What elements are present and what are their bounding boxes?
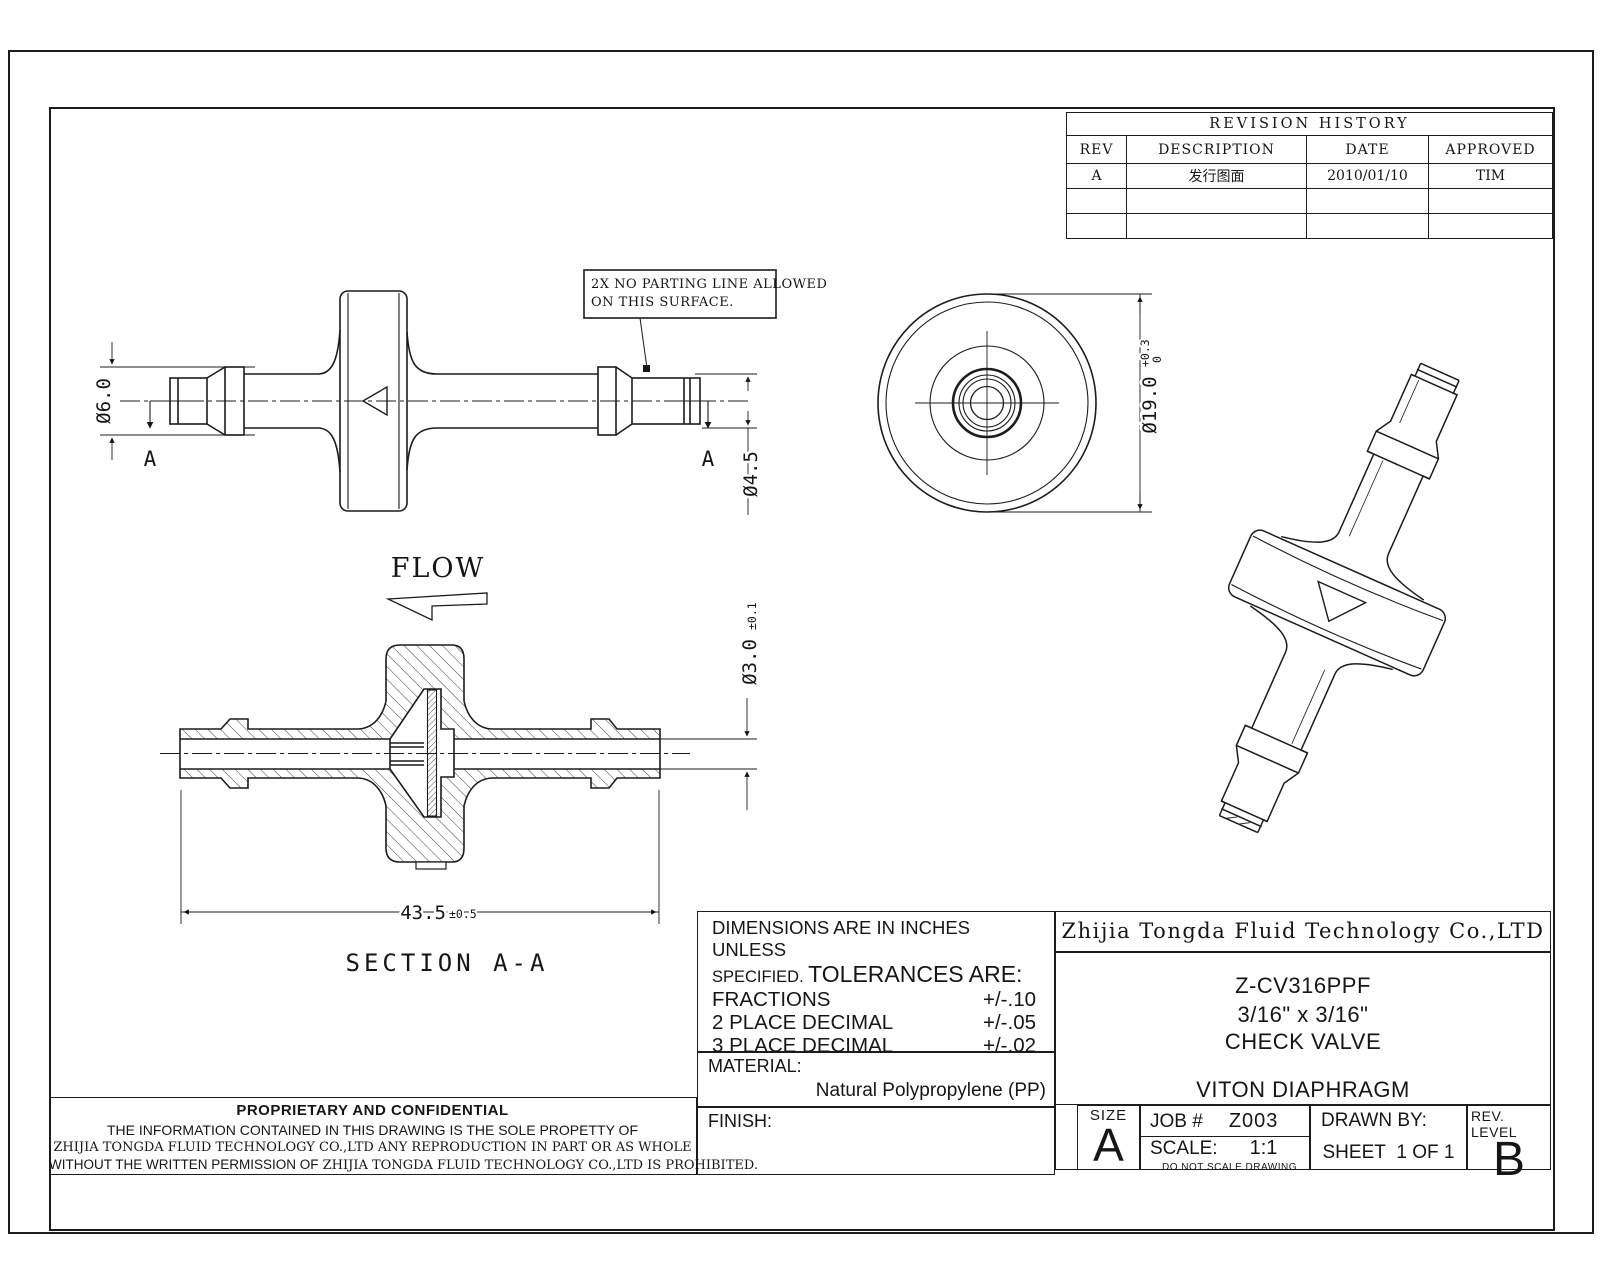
tolerance-line-1: DIMENSIONS ARE IN INCHES UNLESS	[712, 917, 1042, 961]
material-block: MATERIAL: Natural Polypropylene (PP)	[697, 1052, 1055, 1107]
front-view	[878, 294, 1096, 512]
dim-d19-text: Ø19.0	[1139, 376, 1161, 433]
proprietary-line-1: THE INFORMATION CONTAINED IN THIS DRAWIN…	[49, 1122, 696, 1138]
part-description-block: Z-CV316PPF 3/16" x 3/16" CHECK VALVE VIT…	[1055, 952, 1551, 1105]
part-number: Z-CV316PPF	[1056, 973, 1550, 999]
job-label: JOB #	[1150, 1111, 1203, 1132]
revision-row: A 发行图面 2010/01/10 TIM	[1067, 164, 1553, 189]
part-name: CHECK VALVE	[1056, 1029, 1550, 1055]
revision-row-empty	[1067, 214, 1553, 239]
note-line-1: 2X NO PARTING LINE ALLOWED	[591, 277, 827, 292]
tol-2place-label: 2 PLACE DECIMAL	[712, 1011, 893, 1034]
job-scale-cell: JOB #Z003 SCALE:1:1 DO NOT SCALE DRAWING	[1140, 1105, 1310, 1170]
revision-approved: TIM	[1429, 164, 1553, 189]
proprietary-title: PROPRIETARY AND CONFIDENTIAL	[49, 1102, 696, 1119]
scale-value: 1:1	[1250, 1137, 1278, 1159]
dim-d3-text: Ø3.0	[739, 639, 761, 685]
scale-note: DO NOT SCALE DRAWING	[1150, 1157, 1309, 1179]
revision-description: 发行图面	[1127, 164, 1307, 189]
description-col-header: DESCRIPTION	[1127, 136, 1307, 164]
parting-line-note: 2X NO PARTING LINE ALLOWED ON THIS SURFA…	[584, 270, 827, 372]
approved-col-header: APPROVED	[1429, 136, 1553, 164]
dim-d6-text: Ø6.0	[93, 378, 115, 424]
diaphragm-note: VITON DIAPHRAGM	[1056, 1077, 1550, 1103]
title-block-divider	[1055, 1105, 1077, 1170]
scale-label: SCALE:	[1150, 1138, 1218, 1159]
tolerance-block: DIMENSIONS ARE IN INCHES UNLESS SPECIFIE…	[697, 911, 1055, 1052]
sheet-label: SHEET	[1323, 1142, 1386, 1163]
rev-level-cell: REV. LEVEL B	[1467, 1105, 1551, 1170]
rev-col-header: REV	[1067, 136, 1127, 164]
rev-level-value: B	[1468, 1140, 1550, 1180]
drawn-sheet-cell: DRAWN BY: SHEET 1 OF 1	[1310, 1105, 1467, 1170]
side-view	[120, 291, 748, 511]
material-value: Natural Polypropylene (PP)	[708, 1080, 1046, 1102]
flow-arrow	[388, 593, 487, 620]
proprietary-block: PROPRIETARY AND CONFIDENTIAL THE INFORMA…	[49, 1097, 697, 1175]
dim-d3-tol: ±0.1	[745, 602, 759, 630]
dim-d45-text: Ø4.5	[740, 451, 762, 497]
tolerance-line-2-big: TOLERANCES ARE:	[808, 961, 1022, 987]
tolerance-line-2-small: SPECIFIED.	[712, 968, 804, 986]
tol-fractions-label: FRACTIONS	[712, 988, 830, 1011]
job-value: Z003	[1229, 1110, 1279, 1132]
note-leader-dot	[643, 365, 650, 372]
proprietary-line-3: WITHOUT THE WRITTEN PERMISSION OF ZHIJIA…	[49, 1157, 696, 1173]
sheet-value: 1 OF 1	[1396, 1142, 1454, 1163]
valve-seat-legs	[390, 743, 424, 765]
revision-rev: A	[1067, 164, 1127, 189]
dim-d19-lower-tol: 0	[1150, 356, 1164, 363]
flow-indicator: FLOW	[388, 553, 487, 620]
revision-history-table: REVISION HISTORY REV DESCRIPTION DATE AP…	[1066, 112, 1553, 239]
part-size: 3/16" x 3/16"	[1056, 1002, 1550, 1028]
material-label: MATERIAL:	[708, 1056, 1046, 1077]
dim-d45: Ø4.5	[695, 374, 762, 515]
dim-length-tol: ±0.5	[449, 907, 477, 921]
revision-history-title: REVISION HISTORY	[1067, 113, 1553, 136]
dim-length-text: 43.5	[400, 902, 446, 924]
isometric-view	[1142, 329, 1537, 867]
revision-date: 2010/01/10	[1307, 164, 1429, 189]
section-markers: A A	[144, 401, 715, 471]
proprietary-line-2: ZHIJIA TONGDA FLUID TECHNOLOGY CO.,LTD A…	[49, 1140, 696, 1155]
proprietary-line-3b: ZHIJIA TONGDA FLUID TECHNOLOGY CO.,LTD I…	[319, 1158, 758, 1173]
date-col-header: DATE	[1307, 136, 1429, 164]
section-view	[160, 645, 690, 869]
note-line-2: ON THIS SURFACE.	[591, 295, 734, 310]
proprietary-line-3a: WITHOUT THE WRITTEN PERMISSION OF	[49, 1157, 319, 1172]
section-label-a-right: A	[702, 447, 715, 471]
diaphragm-section	[428, 690, 437, 816]
tol-2place-value: +/-.05	[983, 1011, 1036, 1034]
section-label-a-left: A	[144, 447, 157, 471]
company-name: Zhijia Tongda Fluid Technology Co.,LTD	[1055, 911, 1551, 952]
flow-label: FLOW	[391, 553, 486, 584]
revision-row-empty	[1067, 189, 1553, 214]
size-value: A	[1078, 1124, 1139, 1166]
tol-fractions-value: +/-.10	[983, 988, 1036, 1011]
finish-label: FINISH:	[708, 1111, 1054, 1132]
dim-d3: Ø3.0 ±0.1	[660, 602, 761, 810]
size-cell: SIZE A	[1077, 1105, 1140, 1170]
drawn-by-label: DRAWN BY:	[1311, 1106, 1466, 1132]
body-bottom-tab	[416, 862, 446, 869]
section-title: SECTION A-A	[346, 949, 549, 977]
